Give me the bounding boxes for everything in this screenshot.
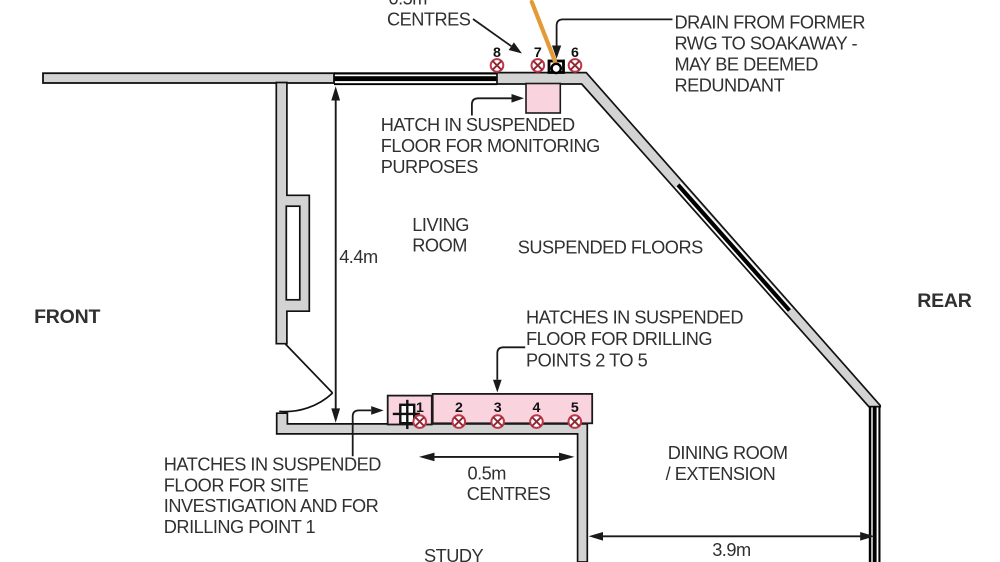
- svg-text:HATCHES IN SUSPENDED: HATCHES IN SUSPENDED: [526, 307, 743, 327]
- svg-text:DRILLING POINT 1: DRILLING POINT 1: [164, 517, 316, 537]
- svg-text:FRONT: FRONT: [34, 306, 100, 328]
- svg-text:CENTRES: CENTRES: [387, 9, 471, 29]
- svg-text:STUDY: STUDY: [424, 546, 484, 562]
- svg-text:RWG TO SOAKAWAY -: RWG TO SOAKAWAY -: [675, 33, 858, 53]
- svg-text:CENTRES: CENTRES: [467, 484, 551, 504]
- svg-text:3: 3: [494, 400, 502, 416]
- svg-text:REAR: REAR: [917, 290, 972, 312]
- svg-text:FLOOR FOR DRILLING: FLOOR FOR DRILLING: [526, 329, 712, 349]
- svg-text:HATCHES IN SUSPENDED: HATCHES IN SUSPENDED: [164, 454, 381, 474]
- svg-text:PURPOSES: PURPOSES: [381, 157, 478, 177]
- svg-text:DINING ROOM: DINING ROOM: [668, 443, 788, 463]
- svg-text:3.9m: 3.9m: [712, 540, 750, 560]
- svg-text:POINTS 2 TO 5: POINTS 2 TO 5: [526, 351, 648, 371]
- svg-text:SUSPENDED FLOORS: SUSPENDED FLOORS: [518, 237, 703, 257]
- svg-text:REDUNDANT: REDUNDANT: [675, 75, 785, 95]
- svg-text:1: 1: [416, 400, 424, 416]
- svg-text:0.5m: 0.5m: [468, 464, 506, 484]
- svg-text:HATCH IN SUSPENDED: HATCH IN SUSPENDED: [381, 115, 575, 135]
- svg-text:2: 2: [455, 400, 463, 416]
- svg-text:0.5m: 0.5m: [389, 0, 427, 8]
- svg-text:4: 4: [533, 400, 541, 416]
- svg-text:FLOOR FOR SITE: FLOOR FOR SITE: [164, 475, 309, 495]
- svg-text:ROOM: ROOM: [412, 236, 467, 256]
- svg-text:MAY BE DEEMED: MAY BE DEEMED: [675, 54, 819, 74]
- svg-text:LIVING: LIVING: [412, 215, 469, 235]
- svg-text:INVESTIGATION AND FOR: INVESTIGATION AND FOR: [164, 496, 379, 516]
- svg-text:5: 5: [571, 400, 579, 416]
- svg-text:4.4m: 4.4m: [339, 247, 377, 267]
- svg-text:/ EXTENSION: / EXTENSION: [666, 464, 776, 484]
- svg-text:DRAIN FROM FORMER: DRAIN FROM FORMER: [675, 12, 866, 32]
- svg-text:FLOOR FOR MONITORING: FLOOR FOR MONITORING: [381, 136, 600, 156]
